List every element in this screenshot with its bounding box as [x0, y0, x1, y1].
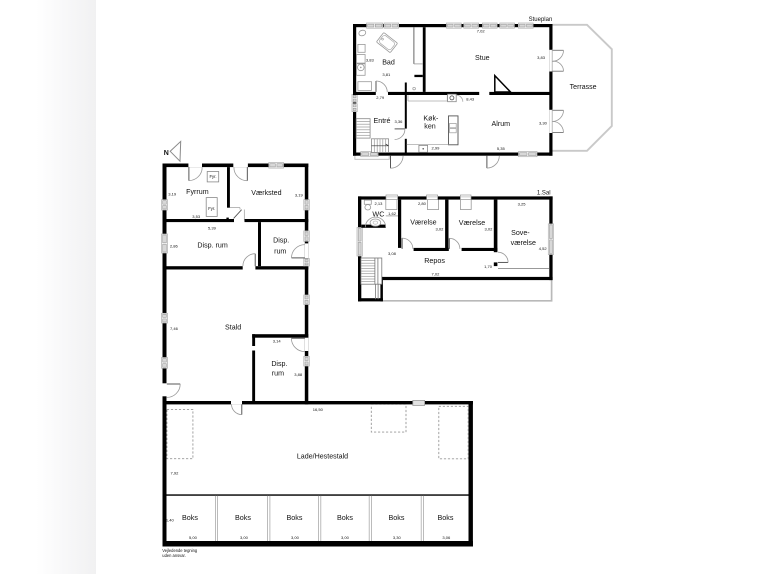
svg-text:Stald: Stald — [225, 324, 241, 332]
svg-text:ken: ken — [424, 122, 435, 130]
svg-text:2,86: 2,86 — [170, 243, 179, 248]
svg-text:Bad: Bad — [382, 58, 395, 66]
svg-text:Alrum: Alrum — [492, 120, 511, 128]
svg-text:2,13: 2,13 — [374, 201, 383, 206]
svg-text:rum: rum — [272, 370, 284, 378]
svg-text:3,14: 3,14 — [273, 339, 282, 344]
svg-text:Boks: Boks — [389, 513, 405, 522]
svg-text:værelse: værelse — [511, 239, 536, 247]
svg-text:Værksted: Værksted — [251, 189, 281, 197]
svg-text:2,80: 2,80 — [418, 201, 427, 206]
svg-text:7,92: 7,92 — [171, 470, 180, 475]
svg-text:uden ansvar.: uden ansvar. — [162, 553, 185, 558]
svg-text:7,46: 7,46 — [170, 326, 179, 331]
svg-text:Stueplan: Stueplan — [529, 17, 553, 23]
svg-text:Repos: Repos — [424, 256, 445, 265]
svg-text:rum: rum — [274, 248, 286, 256]
svg-text:3,19: 3,19 — [168, 192, 177, 197]
svg-text:3,02: 3,02 — [485, 227, 494, 232]
svg-text:Disp.: Disp. — [273, 236, 289, 244]
svg-text:3,30: 3,30 — [539, 120, 548, 125]
svg-text:1,70: 1,70 — [484, 264, 493, 269]
svg-text:Disp. rum: Disp. rum — [197, 241, 227, 249]
svg-text:Boks: Boks — [337, 513, 353, 522]
svg-text:Boks: Boks — [182, 513, 198, 522]
svg-text:7,02: 7,02 — [432, 272, 441, 277]
svg-text:Disp.: Disp. — [271, 360, 287, 368]
svg-text:3,83: 3,83 — [537, 55, 546, 60]
svg-text:1,62: 1,62 — [388, 211, 397, 216]
svg-text:Værelse: Værelse — [410, 219, 436, 227]
svg-text:1,40: 1,40 — [166, 518, 175, 523]
svg-text:3,30: 3,30 — [393, 535, 402, 540]
svg-text:Terrasse: Terrasse — [570, 84, 597, 91]
svg-text:5,00: 5,00 — [189, 535, 198, 540]
svg-text:2,99: 2,99 — [432, 146, 441, 151]
svg-text:3,08: 3,08 — [388, 251, 397, 256]
svg-text:16,50: 16,50 — [313, 407, 324, 412]
svg-text:3,25: 3,25 — [518, 201, 527, 206]
svg-text:3,36: 3,36 — [395, 119, 404, 124]
svg-text:Boks: Boks — [438, 513, 454, 522]
svg-text:N: N — [164, 150, 169, 157]
svg-text:1.Sal: 1.Sal — [537, 191, 551, 197]
svg-text:3,83: 3,83 — [366, 58, 375, 63]
svg-text:Stue: Stue — [475, 54, 490, 62]
svg-text:Fyrrum: Fyrrum — [186, 188, 209, 196]
svg-text:4,52: 4,52 — [539, 246, 548, 251]
svg-text:8,43: 8,43 — [466, 97, 475, 102]
svg-text:7,02: 7,02 — [477, 28, 486, 33]
svg-text:Entré: Entré — [374, 117, 391, 125]
svg-text:WC: WC — [372, 209, 384, 218]
svg-text:5,39: 5,39 — [208, 226, 217, 231]
svg-text:3,00: 3,00 — [341, 535, 350, 540]
svg-text:Fyr.: Fyr. — [208, 206, 215, 211]
svg-text:3,06: 3,06 — [442, 535, 451, 540]
svg-text:Lade/Hestestald: Lade/Hestestald — [297, 452, 348, 460]
svg-text:3,00: 3,00 — [291, 535, 300, 540]
svg-text:3,19: 3,19 — [295, 192, 304, 197]
svg-text:2,79: 2,79 — [376, 95, 385, 100]
svg-text:Værelse: Værelse — [459, 219, 485, 227]
svg-text:Fyr.: Fyr. — [210, 174, 217, 179]
svg-text:3,53: 3,53 — [192, 214, 201, 219]
svg-text:Sove-: Sove- — [511, 229, 530, 237]
svg-text:3,81: 3,81 — [382, 72, 391, 77]
svg-text:Boks: Boks — [235, 513, 251, 522]
svg-text:3,02: 3,02 — [436, 227, 445, 232]
svg-text:5,35: 5,35 — [497, 146, 506, 151]
svg-text:Boks: Boks — [287, 513, 303, 522]
svg-text:3,88: 3,88 — [294, 372, 303, 377]
svg-text:3,00: 3,00 — [240, 535, 249, 540]
